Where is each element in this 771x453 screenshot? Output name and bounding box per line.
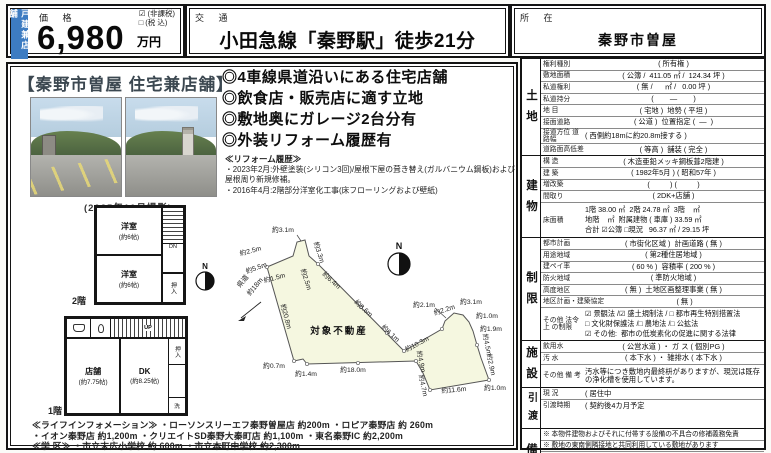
table-row: 私道権利( 無 / ㎡ / 0.00 坪 ) bbox=[541, 82, 764, 94]
measurement-label: 約2.5m bbox=[239, 243, 263, 257]
measurement-label: 約2.1m bbox=[413, 300, 435, 309]
stairs-up-label: UP bbox=[143, 325, 153, 331]
row-label: 汚 水 bbox=[543, 355, 585, 362]
floor-area-line: 合計 ☑公簿 □現況 96.37 ㎡ / 29.15 坪 bbox=[585, 225, 762, 235]
tax-free-checkbox: ☑ (非課税) bbox=[139, 9, 175, 18]
category-tab: 戸建兼店舗 bbox=[11, 9, 28, 59]
life-info-line: ≪ライフインフォメーション≫ ・ローソンスリーエフ秦野曽屋店 約200m ・ロピ… bbox=[32, 420, 512, 431]
table-row: 増改築( ) ( ) bbox=[541, 180, 764, 192]
selling-point: ◎敷地奥にガレージ2台分有 bbox=[222, 109, 448, 130]
table-row: 間取り( 2DK+店舗 ) bbox=[541, 191, 764, 203]
row-label: その他 備 考 bbox=[543, 372, 585, 379]
section-label-notes: 備考 bbox=[522, 429, 541, 453]
measurement-label: 約5.5m bbox=[244, 260, 268, 276]
row-value: ( 宅地 ) 地勢 ( 平坦 ) bbox=[585, 107, 762, 115]
section-label-delivery: 引渡 bbox=[522, 388, 541, 428]
row-label: 権利種別 bbox=[543, 61, 585, 68]
row-label: 現 況 bbox=[543, 390, 585, 397]
floor-area-row: 床面積 1階 38.00 ㎡ 2階 24.78 ㎡ 3階 ㎡ 地階 ㎡ 附属建物… bbox=[541, 203, 764, 238]
school-district-line: ≪学 区≫ ・市立末広小学校 約 600m ・市立本町中学校 約2,300m bbox=[32, 441, 512, 452]
measurement-label: 約1.0m bbox=[476, 311, 498, 320]
floor-tag-2f: 2階 bbox=[72, 294, 86, 307]
row-label: 道路面高低差 bbox=[543, 146, 585, 153]
table-row: 建 築( 1982年5月 ) ( 昭和57年 ) bbox=[541, 168, 764, 180]
measurement-label: 約1.9m bbox=[480, 324, 502, 333]
closet-label: 押入 bbox=[169, 339, 185, 365]
table-row: 敷地面積( 公簿 / 411.05 ㎡ / 124.34 坪 ) bbox=[541, 71, 764, 83]
section-label-restrictions: 制限 bbox=[522, 238, 541, 340]
table-row: その他 備 考汚水等につき敷地内最終枡がありますが、現況は既存の浄化槽を使用して… bbox=[541, 365, 764, 388]
life-information: ≪ライフインフォメーション≫ ・ローソンスリーエフ秦野曽屋店 約200m ・ロピ… bbox=[32, 420, 512, 452]
property-title: 【秦野市曽屋 住宅兼店舗】 bbox=[18, 71, 234, 95]
room-size: (約6帖) bbox=[119, 232, 139, 241]
site-plan: 県道 約18m N 対象不動産 約3.1m 約2.5m 約3.3m 約5.5m … bbox=[227, 222, 519, 422]
measurement-label: 約1.0m bbox=[484, 383, 506, 392]
room-western-1: 洋室 (約6帖) bbox=[97, 208, 161, 254]
row-value: ( 準防火地域 ) bbox=[585, 274, 762, 282]
row-label: 私道権利 bbox=[543, 84, 585, 91]
row-label: 増改築 bbox=[543, 181, 585, 188]
floor-area-line: 地階 ㎡ 附属建物 ( 車庫 ) 33.59 ㎡ bbox=[585, 215, 762, 225]
section-label-facilities: 施設 bbox=[522, 341, 541, 387]
row-value: ( 等高 ) 舗装 ( 完全 ) bbox=[585, 146, 762, 154]
table-row: 地区計画・建築協定( 無 ) bbox=[541, 296, 764, 308]
law-checkbox-line: ☑ 景観法 /☑ 盛土規制法 / □ 都市再生特別措置法 bbox=[585, 309, 762, 319]
closet-label: 押入 bbox=[163, 272, 183, 302]
row-value: ( 居住中 bbox=[585, 390, 762, 398]
law-checkbox-line: ☑ その他: 都市の低炭素化の促進に関する法律 bbox=[585, 329, 762, 339]
section-label-land: 土地 bbox=[522, 59, 541, 155]
location-label: 所 在 bbox=[520, 11, 559, 24]
selling-point: ◎外装リフォーム履歴有 bbox=[222, 130, 448, 151]
row-label: 建ペイ率 bbox=[543, 263, 585, 270]
price-tax-checkboxes: ☑ (非課税) □ (税 込) bbox=[139, 9, 175, 28]
section-notes: 備考 ※ 本物件建物およびそれに付帯する設備の不具合の修補義務免責 ※ 敷地の東… bbox=[522, 429, 764, 453]
table-row: 現 況( 居住中 bbox=[541, 388, 764, 400]
row-label: 高度地区 bbox=[543, 287, 585, 294]
measurement-label: 約3.1m bbox=[460, 297, 482, 306]
measurement-label: 約0.7m bbox=[263, 361, 285, 370]
price-body: 価 格 ☑ (非課税) □ (税 込) 6,980 万円 bbox=[31, 6, 183, 56]
selling-point: ◎4車線県道沿いにある住宅店舗 bbox=[222, 67, 448, 88]
row-label: 地 目 bbox=[543, 107, 585, 114]
row-value: ( 無 ) bbox=[607, 298, 762, 306]
price-unit: 万円 bbox=[137, 33, 161, 50]
photo-cloud bbox=[40, 106, 103, 124]
table-row: 道路面高低差( 等高 ) 舗装 ( 完全 ) bbox=[541, 144, 764, 156]
table-row: 防火地域( 準防火地域 ) bbox=[541, 273, 764, 285]
table-row: 構 造( 木造亜鉛メッキ鋼板葺2階建 ) bbox=[541, 156, 764, 168]
row-label: 私道持分 bbox=[543, 96, 585, 103]
section-label-building: 建物 bbox=[522, 156, 541, 237]
other-laws-row: その他 法令上 の制限 ☑ 景観法 /☑ 盛土規制法 / □ 都市再生特別措置法… bbox=[541, 308, 764, 340]
row-value: ( ― ) bbox=[585, 95, 762, 103]
floorplan-1f-side: 押入 洗 bbox=[168, 339, 185, 413]
room-size: (約6帖) bbox=[119, 280, 139, 289]
price-amount: 6,980 bbox=[37, 19, 125, 57]
row-label: 都市計画 bbox=[543, 240, 585, 247]
row-value: ( 2DK+店舗 ) bbox=[585, 192, 762, 200]
row-value: ( 所有権 ) bbox=[585, 60, 762, 68]
room-name: DK bbox=[139, 367, 151, 376]
row-value: ( 公営水道 ) ・ ガ ス ( 個別PG ) bbox=[585, 343, 762, 351]
tax-included-checkbox: □ (税 込) bbox=[139, 18, 175, 27]
price-box: 戸建兼店舗 価 格 ☑ (非課税) □ (税 込) 6,980 万円 bbox=[6, 4, 185, 58]
floor-area-line: 1階 38.00 ㎡ 2階 24.78 ㎡ 3階 ㎡ bbox=[585, 205, 762, 215]
law-checkbox-line: □ 文化財保護法 /□ 農地法 /□ 公拡法 bbox=[585, 319, 762, 329]
reform-history-item: ・2023年2月:外壁塗装(シリコン3回)/屋根下屋の葺き替え(ガルバニウム鋼板… bbox=[225, 165, 517, 186]
photo-cloud bbox=[135, 106, 198, 124]
row-label: その他 法令上 の制限 bbox=[543, 317, 585, 331]
room-shop: 店舗 (約7.75帖) bbox=[67, 339, 121, 413]
property-photo-left bbox=[30, 97, 122, 197]
section-restrictions: 制限 都市計画( 市街化区域 ) 計画道路 ( 無 ) 用途地域( 第2種住居地… bbox=[522, 238, 764, 341]
floorplan-1f-top-strip: UP bbox=[67, 319, 185, 339]
location-value: 秦野市曽屋 bbox=[512, 30, 764, 50]
table-row: 都市計画( 市街化区域 ) 計画道路 ( 無 ) bbox=[541, 238, 764, 250]
table-row: 私道持分( ― ) bbox=[541, 94, 764, 106]
table-row: 接道方位 道路幅( 西側約18mに約20.8m接する ) bbox=[541, 129, 764, 144]
floorplan-2f-side: DN 押入 bbox=[163, 208, 183, 302]
property-spec-table: 土地 権利種別( 所有権 ) 敷地面積( 公簿 / 411.05 ㎡ / 124… bbox=[520, 57, 766, 450]
property-photo-right bbox=[125, 97, 217, 197]
row-value: ( 西側約18mに約20.8m接する ) bbox=[585, 132, 762, 140]
compass-2f: N bbox=[192, 260, 218, 294]
row-label: 地区計画・建築協定 bbox=[543, 298, 607, 305]
stairs-icon bbox=[163, 208, 183, 244]
room-western-2: 洋室 (約6帖) bbox=[97, 254, 161, 302]
row-value: ( 契約後4カ月予定 bbox=[585, 402, 762, 410]
toilet-icon bbox=[91, 319, 111, 337]
room-dk: DK (約8.25帖) bbox=[121, 339, 168, 413]
row-value: ( ) ( ) bbox=[585, 181, 762, 189]
row-label: 用途地域 bbox=[543, 252, 585, 259]
row-value: 汚水等につき敷地内最終枡がありますが、現況は既存の浄化槽を使用しています。 bbox=[585, 368, 762, 384]
section-land: 土地 権利種別( 所有権 ) 敷地面積( 公簿 / 411.05 ㎡ / 124… bbox=[522, 59, 764, 156]
row-value: ( 無 / ㎡ / 0.00 坪 ) bbox=[585, 83, 762, 91]
note-item: ※ 敷地の東南側隣接地と共同利用している敷地があります bbox=[541, 441, 764, 453]
reform-history: ≪リフォーム履歴≫ ・2023年2月:外壁塗装(シリコン3回)/屋根下屋の葺き替… bbox=[225, 153, 517, 196]
table-row: 汚 水( 本下水 ) ・ 雑排水 ( 本下水 ) bbox=[541, 353, 764, 365]
row-value: ( 第2種住居地域 ) bbox=[585, 251, 762, 259]
real-estate-flyer: 戸建兼店舗 価 格 ☑ (非課税) □ (税 込) 6,980 万円 交 通 小… bbox=[0, 0, 771, 453]
section-facilities: 施設 飲用水( 公営水道 ) ・ ガ ス ( 個別PG ) 汚 水( 本下水 )… bbox=[522, 341, 764, 388]
access-value: 小田急線「秦野駅」徒歩21分 bbox=[187, 26, 508, 53]
row-value: ( 市街化区域 ) 計画道路 ( 無 ) bbox=[585, 240, 762, 248]
row-value: ( 60 % ) 容積率 ( 200 % ) bbox=[585, 263, 762, 271]
location-box: 所 在 秦野市曽屋 bbox=[510, 4, 766, 58]
row-value: ( 無 ) 土地区画整理事業 ( 無 ) bbox=[585, 286, 762, 294]
table-row: 高度地区( 無 ) 土地区画整理事業 ( 無 ) bbox=[541, 285, 764, 297]
table-row: 建ペイ率( 60 % ) 容積率 ( 200 % ) bbox=[541, 262, 764, 274]
section-building: 建物 構 造( 木造亜鉛メッキ鋼板葺2階建 ) 建 築( 1982年5月 ) (… bbox=[522, 156, 764, 238]
measurement-label: 約1.4m bbox=[295, 369, 317, 378]
room-name: 店舗 bbox=[85, 366, 101, 377]
reform-history-item: ・2016年4月:2階部分洋室化工事(床フローリングおよび壁紙) bbox=[225, 186, 517, 196]
selling-point: ◎飲食店・販売店に適す立地 bbox=[222, 88, 448, 109]
table-row: 接面道路( 公道 ) 位置指定 ( ― ) bbox=[541, 117, 764, 129]
laundry-label: 洗 bbox=[169, 397, 185, 413]
room-size: (約7.75帖) bbox=[79, 377, 108, 386]
table-row: 飲用水( 公営水道 ) ・ ガ ス ( 個別PG ) bbox=[541, 341, 764, 353]
row-label: 飲用水 bbox=[543, 343, 585, 350]
stairs-up: UP bbox=[111, 319, 185, 337]
measurement-label: 約3.1m bbox=[272, 225, 294, 234]
row-label: 構 造 bbox=[543, 158, 585, 165]
table-row: 権利種別( 所有権 ) bbox=[541, 59, 764, 71]
row-label: 床面積 bbox=[543, 217, 585, 224]
note-item: ※ 本物件建物およびそれに付帯する設備の不具合の修補義務免責 bbox=[541, 429, 764, 441]
compass-site: N bbox=[388, 241, 410, 275]
floorplan-2f: 洋室 (約6帖) 洋室 (約6帖) DN 押入 bbox=[94, 205, 186, 305]
photo-building bbox=[42, 135, 56, 157]
measurement-label: 約18.0m bbox=[340, 365, 366, 374]
photo-road bbox=[126, 155, 216, 196]
table-row: 地 目( 宅地 ) 地勢 ( 平坦 ) bbox=[541, 105, 764, 117]
row-label: 敷地面積 bbox=[543, 72, 585, 79]
stairs-down-label: DN bbox=[163, 244, 183, 250]
access-label: 交 通 bbox=[195, 11, 234, 24]
section-delivery: 引渡 現 況( 居住中 引渡時期( 契約後4カ月予定 bbox=[522, 388, 764, 429]
row-value: ( 木造亜鉛メッキ鋼板葺2階建 ) bbox=[585, 158, 762, 166]
row-value: ( 本下水 ) ・ 雑排水 ( 本下水 ) bbox=[585, 354, 762, 362]
table-row: 用途地域( 第2種住居地域 ) bbox=[541, 250, 764, 262]
property-detail-box: 【秦野市曽屋 住宅兼店舗】 (2025年10月撮影) ◎4車線県道沿いにある住宅… bbox=[6, 62, 518, 450]
row-label: 防火地域 bbox=[543, 275, 585, 282]
row-value: ( 公道 ) 位置指定 ( ― ) bbox=[585, 118, 762, 126]
row-label: 接道方位 道路幅 bbox=[543, 129, 585, 143]
row-label: 間取り bbox=[543, 193, 585, 200]
target-property-label: 対象不動産 bbox=[309, 325, 368, 337]
life-info-line: ・イオン秦野店 約1,200m ・クリエイトSD秦野大秦町店 約1,100m ・… bbox=[32, 431, 512, 442]
compass-n-label: N bbox=[202, 262, 208, 271]
row-value: ( 1982年5月 ) ( 昭和57年 ) bbox=[585, 169, 762, 177]
floorplan-1f: UP 店舗 (約7.75帖) DK (約8.25帖) 押入 洗 bbox=[64, 316, 188, 416]
selling-points: ◎4車線県道沿いにある住宅店舗 ◎飲食店・販売店に適す立地 ◎敷地奥にガレージ2… bbox=[222, 67, 448, 151]
access-box: 交 通 小田急線「秦野駅」徒歩21分 bbox=[185, 4, 510, 58]
row-label: 引渡時期 bbox=[543, 402, 585, 409]
road-arrow-line bbox=[241, 302, 261, 318]
parcel-outline bbox=[267, 240, 489, 390]
bath-icon bbox=[67, 319, 91, 337]
row-label: 接面道路 bbox=[543, 119, 585, 126]
floor-tag-1f: 1階 bbox=[48, 404, 62, 417]
table-row: 引渡時期( 契約後4カ月予定 bbox=[541, 400, 764, 412]
room-name: 洋室 bbox=[121, 221, 137, 232]
floorplan-1f-body: 店舗 (約7.75帖) DK (約8.25帖) 押入 洗 bbox=[67, 339, 185, 413]
room-name: 洋室 bbox=[121, 269, 137, 280]
reform-history-title: ≪リフォーム履歴≫ bbox=[225, 153, 517, 165]
floorplan-2f-rooms: 洋室 (約6帖) 洋室 (約6帖) bbox=[97, 208, 163, 302]
row-value: ( 公簿 / 411.05 ㎡ / 124.34 坪 ) bbox=[585, 72, 762, 80]
row-label: 建 築 bbox=[543, 170, 585, 177]
room-size: (約8.25帖) bbox=[130, 376, 159, 385]
compass-n-label: N bbox=[396, 241, 403, 251]
